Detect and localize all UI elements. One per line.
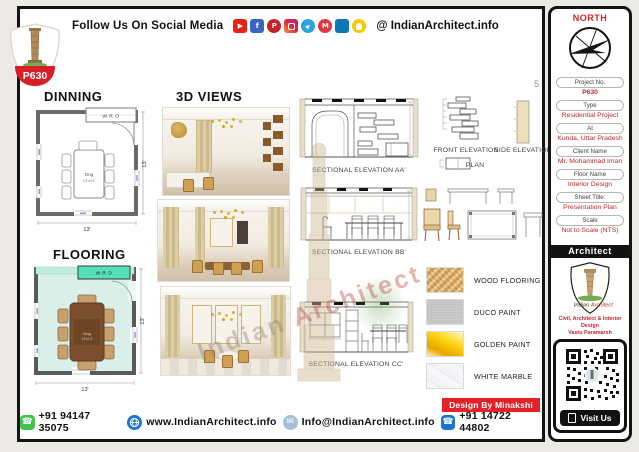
footer-phone[interactable]: ☎ +91 14722 44802 (441, 410, 542, 434)
render-3d-2 (157, 199, 290, 282)
flooring-plan: W.R.D Dng 13'x13' (28, 261, 146, 399)
svg-text:13'x13': 13'x13' (83, 178, 96, 183)
qr-panel: Visit Us (553, 339, 627, 433)
svg-text:W.R.D: W.R.D (96, 271, 113, 277)
info-sidebar: NORTH Project No. P630 Type Residential … (548, 6, 632, 442)
project-fields: Project No. P630 Type Residential Projec… (551, 77, 629, 238)
render-3d-3 (160, 286, 291, 376)
north-label: NORTH (551, 13, 629, 23)
svg-text:13': 13' (140, 317, 146, 324)
page-number: 5 (534, 79, 539, 89)
footer: ☎ +91 94147 35075 www.IndianArchitect.in… (20, 407, 542, 437)
views-title: 3D VIEWS (176, 89, 242, 104)
sectional-elevation-aa-caption: SECTIONAL ELEVATION AA' (296, 167, 422, 174)
render-fireplace (237, 221, 249, 244)
field-client-name: Client Name Mr. Mohammad Iman (551, 146, 629, 165)
wood-flooring-label: WOOD FLOORING (474, 276, 541, 285)
instagram-icon[interactable] (284, 19, 298, 33)
render-wall-panel (210, 218, 233, 248)
duco-paint-swatch (426, 299, 464, 325)
field-scale: Scale Not to Scale (NTS) (551, 215, 629, 234)
field-project-no: Project No. P630 (551, 77, 629, 96)
render-wood-shelf (263, 122, 272, 170)
sectional-elevation-bb-caption: SECTIONAL ELEVATION BB' (297, 249, 421, 256)
render-chandelier (218, 312, 221, 315)
sectional-elevation-cc-caption: SECTIONAL ELEVATION CC' (296, 361, 416, 368)
render-chair (204, 350, 215, 363)
render-chair (222, 355, 233, 368)
render-chair (183, 179, 194, 192)
render-curtain (271, 295, 286, 358)
phone-icon: ☎ (441, 415, 456, 430)
render-curtain (195, 207, 205, 268)
tagline: Civil, Architect & Interior Design Vastu… (551, 316, 629, 337)
furniture-details-drawing (420, 185, 550, 247)
render-3d-1 (162, 107, 290, 196)
follow-us-label: Follow Us On Social Media (72, 20, 223, 32)
sectional-elevation-bb-drawing (299, 183, 419, 249)
youtube-icon[interactable]: ▶ (233, 19, 247, 33)
field-sheet-title: Sheet Title: Presentation Plan (551, 192, 629, 211)
sectional-elevation-cc-drawing (298, 297, 415, 361)
tagline-line2: Vastu Paramarsh (551, 330, 629, 337)
legend-item-marble: WHITE MARBLE (426, 363, 532, 389)
render-wall-panel (192, 305, 212, 344)
white-marble-label: WHITE MARBLE (474, 372, 532, 381)
white-marble-swatch (426, 363, 464, 389)
moj-icon[interactable]: M (318, 19, 332, 33)
pinterest-icon[interactable]: P (267, 19, 281, 33)
svg-text:13': 13' (142, 160, 148, 167)
site-handle: @ IndianArchitect.info (376, 20, 498, 32)
flooring-title: FLOORING (53, 247, 126, 262)
globe-icon (127, 415, 142, 430)
dinning-title: DINNING (44, 89, 102, 104)
svg-text:13'x13': 13'x13' (82, 337, 93, 341)
svg-text:13': 13' (83, 227, 90, 233)
telegram-plane: ▶ (304, 22, 312, 30)
header: Follow Us On Social Media ▶ f P ▶ M @ In… (20, 9, 542, 43)
svg-text:P630: P630 (23, 70, 48, 82)
qr-code[interactable] (564, 347, 620, 403)
render-wood-shelf (273, 115, 283, 176)
front-elevation-drawing (440, 95, 488, 145)
snapchat-icon[interactable] (352, 19, 366, 33)
golden-paint-swatch (426, 331, 464, 357)
render-chair (238, 350, 249, 363)
instagram-lens (288, 23, 295, 30)
snapchat-ghost (356, 23, 362, 30)
side-elevation-caption: SIDE ELEVATION (492, 147, 554, 154)
duco-paint-label: DUCO PAINT (474, 308, 521, 317)
render-curtain (163, 207, 179, 268)
render-chair (231, 262, 242, 275)
facebook-icon[interactable]: f (250, 19, 264, 33)
render-dining-table (205, 262, 250, 269)
render-chandelier (220, 210, 223, 213)
footer-email[interactable]: ✉ Info@IndianArchitect.info (283, 415, 435, 430)
phone-number: +91 14722 44802 (459, 410, 542, 434)
whatsapp-icon: ☎ (20, 415, 35, 430)
sheet: Follow Us On Social Media ▶ f P ▶ M @ In… (17, 6, 545, 442)
wood-flooring-swatch (426, 267, 464, 293)
side-elevation-drawing (512, 99, 532, 147)
tagline-line1: Civil, Architect & Interior Design (551, 316, 629, 330)
whatsapp-number: +91 94147 35075 (39, 410, 122, 434)
render-curtain (196, 120, 212, 172)
render-chair (213, 262, 224, 275)
golden-paint-label: GOLDEN PAINT (474, 340, 531, 349)
render-chair (203, 177, 214, 190)
legend-item-wood: WOOD FLOORING (426, 267, 541, 293)
field-type: Type Residential Project (551, 100, 629, 119)
email-icon: ✉ (283, 415, 298, 430)
p630-badge: P630 (8, 22, 62, 88)
website-url: www.IndianArchitect.info (146, 416, 276, 428)
legend-item-duco: DUCO PAINT (426, 299, 521, 325)
render-wall-panel (241, 305, 261, 344)
svg-text:W.R.O: W.R.O (102, 114, 119, 120)
telegram-icon[interactable]: ▶ (301, 19, 315, 33)
render-wall-panel (215, 305, 238, 344)
visit-us-label: Visit Us (580, 413, 611, 423)
render-chair (192, 260, 203, 273)
indian-architect-logo: Indian Architect (561, 259, 619, 317)
footer-whatsapp[interactable]: ☎ +91 94147 35075 (20, 410, 121, 434)
field-floor-name: Floor Name Interior Design (551, 169, 629, 188)
north-compass-icon (566, 24, 614, 72)
sectional-elevation-aa-drawing (298, 93, 420, 165)
visit-us-button[interactable]: Visit Us (560, 410, 620, 426)
visit-us-icon (568, 413, 576, 423)
svg-text:Dng: Dng (83, 331, 90, 336)
field-at: At Kunda, Uttar Pradesh (551, 123, 629, 142)
architect-header: Architect (551, 245, 629, 258)
render-curtain (165, 295, 180, 358)
plan-detail-caption: PLAN (460, 162, 490, 169)
linkedin-icon[interactable] (335, 19, 349, 33)
footer-website[interactable]: www.IndianArchitect.info (127, 415, 276, 430)
dinning-floor-plan: W.R.O Dng 13'x13' 13' 13' (30, 104, 148, 236)
legend-item-golden: GOLDEN PAINT (426, 331, 531, 357)
render-curtain (268, 207, 284, 268)
email-address: Info@IndianArchitect.info (302, 416, 435, 428)
social-icons: ▶ f P ▶ M (233, 19, 366, 33)
render-wall-art (171, 122, 187, 138)
render-chair (252, 260, 263, 273)
svg-text:13': 13' (81, 387, 88, 393)
render-ceiling (163, 108, 289, 120)
svg-text:Architect: Architect (590, 303, 613, 309)
svg-text:Indian: Indian (574, 303, 589, 309)
svg-text:Dng: Dng (85, 172, 94, 177)
render-chandelier (218, 119, 221, 122)
poster-canvas: Follow Us On Social Media ▶ f P ▶ M @ In… (0, 0, 639, 452)
